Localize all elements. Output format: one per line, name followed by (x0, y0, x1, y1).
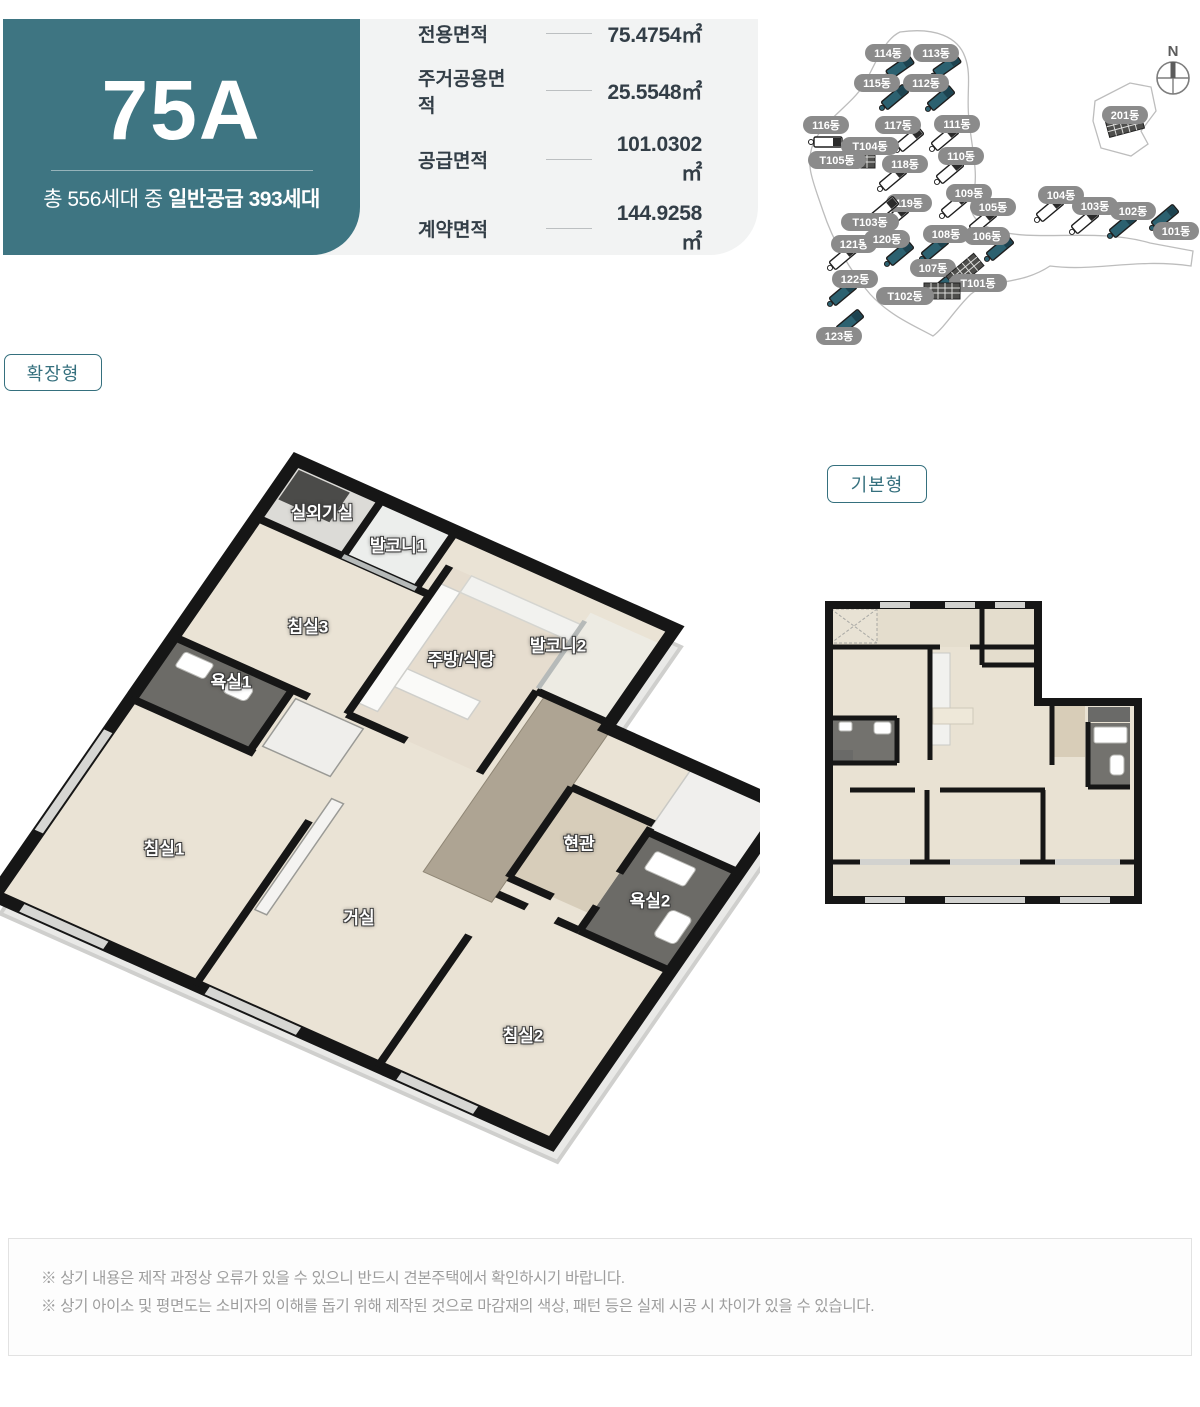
svg-text:T101동: T101동 (960, 277, 995, 290)
room-label-bedroom1: 침실1 (144, 835, 185, 860)
svg-text:T103동: T103동 (852, 216, 887, 229)
svg-text:201동: 201동 (1111, 109, 1139, 122)
building-label-pill: 106동 (964, 227, 1010, 245)
spec-value: 101.0302㎡ (602, 133, 702, 187)
svg-text:117동: 117동 (884, 119, 912, 132)
building-label-pill: 122동 (832, 270, 878, 288)
room-label-bath2: 욕실2 (630, 887, 671, 912)
spec-row-supply: 공급면적 101.0302㎡ (418, 133, 702, 187)
room-label-outdoor-unit: 실외기실 (291, 499, 354, 524)
svg-text:114동: 114동 (874, 47, 902, 60)
spec-value: 25.5548㎡ (602, 76, 702, 106)
page: 75A 총 556세대 중 일반공급 393세대 전용면적 75.4754㎡ 주… (0, 0, 1200, 1407)
site-map: N 114동113동115동112동116동117동111동T104동T105동… (795, 25, 1200, 355)
building-label-pill: 101동 (1153, 222, 1199, 240)
svg-text:115동: 115동 (863, 77, 891, 90)
disclaimer-line-1: ※ 상기 내용은 제작 과정상 오류가 있을 수 있으니 반드시 견본주택에서 … (41, 1265, 1159, 1293)
room-label-balcony1: 발코니1 (370, 532, 426, 557)
extended-floorplan: 실외기실 발코니1 침실3 욕실1 주방/식당 발코니2 침실1 거실 현관 욕… (0, 440, 760, 1200)
spec-divider-line (546, 159, 592, 160)
supply-info: 총 556세대 중 일반공급 393세대 (43, 183, 320, 213)
room-label-bath1: 욕실1 (211, 668, 252, 693)
building-label-pill: 111동 (934, 115, 980, 133)
building-shape (809, 137, 843, 147)
svg-text:111동: 111동 (943, 118, 970, 131)
spec-row-common: 주거공용면적 25.5548㎡ (418, 64, 702, 118)
spec-divider-line (546, 228, 592, 229)
tab-extended-type[interactable]: 확장형 (4, 354, 102, 391)
supply-info-bold: 일반공급 393세대 (168, 188, 320, 211)
svg-text:101동: 101동 (1162, 225, 1190, 238)
unit-type-title: 75A (101, 68, 261, 152)
svg-text:104동: 104동 (1047, 189, 1075, 202)
svg-text:107동: 107동 (919, 262, 947, 275)
svg-text:103동: 103동 (1081, 200, 1109, 213)
svg-text:102동: 102동 (1119, 205, 1147, 218)
room-label-balcony2: 발코니2 (530, 632, 586, 657)
svg-text:119동: 119동 (895, 197, 923, 210)
room-label-living: 거실 (343, 904, 374, 929)
building-label-pill: T103동 (841, 213, 899, 231)
spec-label: 전용면적 (418, 20, 512, 47)
svg-text:118동: 118동 (891, 158, 919, 171)
svg-text:120동: 120동 (873, 233, 901, 246)
tab-basic-type[interactable]: 기본형 (827, 465, 927, 503)
room-label-bedroom3: 침실3 (288, 613, 329, 638)
svg-text:116동: 116동 (812, 119, 840, 132)
spec-label: 주거공용면적 (418, 64, 512, 118)
spec-label: 계약면적 (418, 215, 512, 242)
unit-type-box: 75A 총 556세대 중 일반공급 393세대 (3, 19, 360, 255)
building-label-pill: 120동 (864, 230, 910, 248)
area-spec-table: 전용면적 75.4754㎡ 주거공용면적 25.5548㎡ 공급면적 101.0… (360, 19, 758, 255)
room-label-bedroom2: 침실2 (503, 1022, 544, 1047)
svg-text:112동: 112동 (912, 77, 940, 90)
building-label-pill: 108동 (923, 225, 969, 243)
building-label-pill: 117동 (875, 116, 921, 134)
spec-divider-line (546, 33, 592, 34)
disclaimer-line-2: ※ 상기 아이소 및 평면도는 소비자의 이해를 돕기 위해 제작된 것으로 마… (41, 1293, 1159, 1321)
building-label-pill: 110동 (938, 147, 984, 165)
spec-label: 공급면적 (418, 146, 512, 173)
svg-text:123동: 123동 (825, 330, 853, 343)
building-label-pill: 123동 (816, 327, 862, 345)
building-label-pill: 115동 (854, 74, 900, 92)
svg-text:122동: 122동 (841, 273, 869, 286)
svg-text:106동: 106동 (973, 230, 1001, 243)
building-label-pill: 112동 (903, 74, 949, 92)
building-label-pill: 113동 (913, 44, 959, 62)
svg-text:T102동: T102동 (887, 290, 922, 303)
svg-text:110동: 110동 (947, 150, 975, 163)
building-label-pill: 118동 (882, 155, 928, 173)
building-label-pill: 201동 (1102, 106, 1148, 124)
building-label-pill: 102동 (1110, 202, 1156, 220)
building-label-pill: T105동 (808, 151, 866, 169)
divider (51, 170, 313, 171)
room-label-kitchen: 주방/식당 (427, 646, 494, 671)
building-label-pill: 114동 (865, 44, 911, 62)
spec-row-exclusive: 전용면적 75.4754㎡ (418, 19, 702, 49)
svg-text:121동: 121동 (840, 238, 868, 251)
disclaimer-panel: ※ 상기 내용은 제작 과정상 오류가 있을 수 있으니 반드시 견본주택에서 … (8, 1238, 1192, 1356)
building-label-pill: 105동 (970, 198, 1016, 216)
basic-floorplan (820, 595, 1150, 910)
spec-value: 144.9258㎡ (602, 202, 702, 256)
spec-row-contract: 계약면적 144.9258㎡ (418, 202, 702, 256)
spec-divider-line (546, 90, 592, 91)
svg-text:105동: 105동 (979, 201, 1007, 214)
supply-info-prefix: 총 556세대 중 (43, 188, 168, 211)
svg-text:113동: 113동 (922, 47, 950, 60)
spec-value: 75.4754㎡ (602, 19, 702, 49)
building-label-pill: 116동 (803, 116, 849, 134)
room-label-entrance: 현관 (563, 830, 594, 855)
svg-text:108동: 108동 (932, 228, 960, 241)
compass-north-label: N (1168, 43, 1179, 60)
svg-text:T105동: T105동 (819, 154, 854, 167)
building-label-pill: T102동 (876, 287, 934, 305)
compass-icon: N (1157, 43, 1189, 94)
